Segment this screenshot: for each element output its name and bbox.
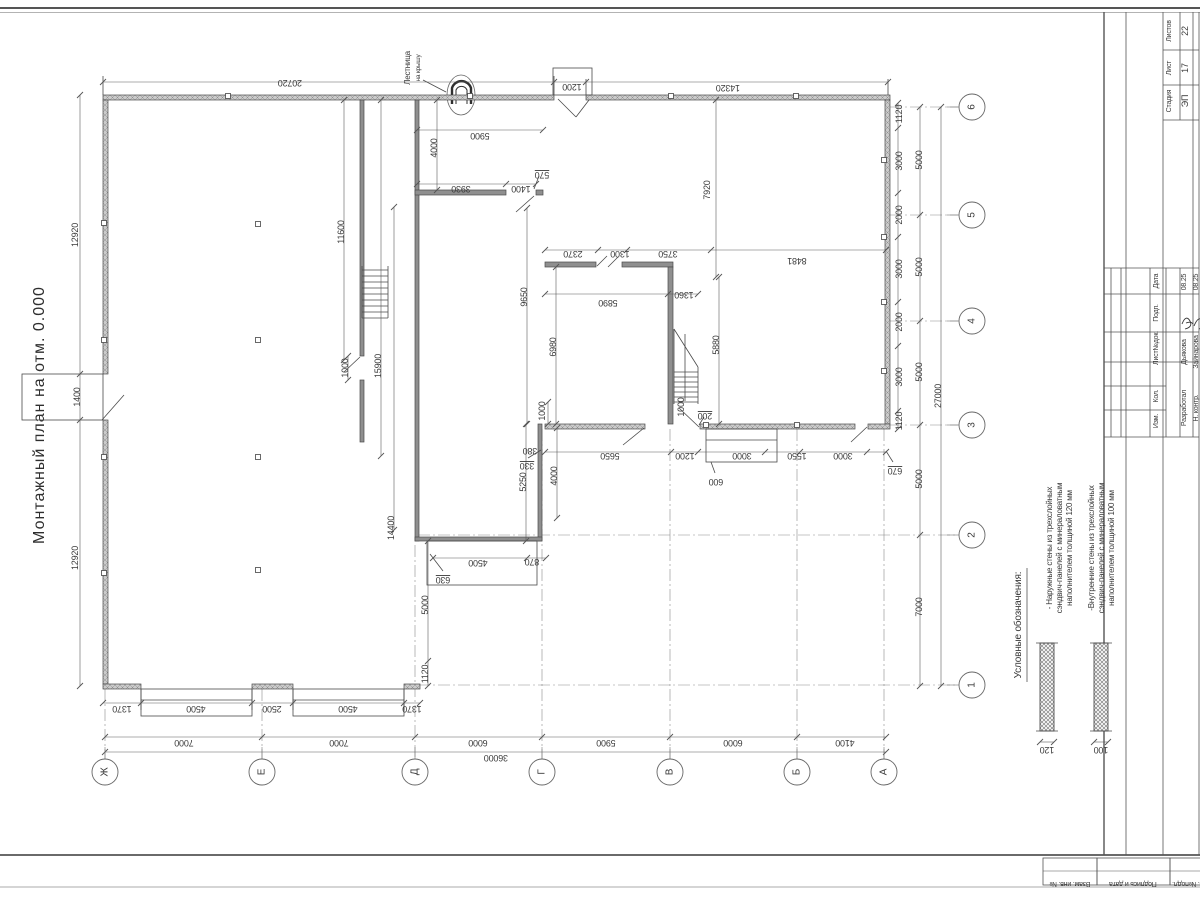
legend-wall-sample-interior: [1094, 643, 1108, 731]
column-mark: [468, 94, 473, 99]
legend-item1-line3: наполнителем толщиной 120 мм: [1065, 490, 1074, 606]
dim-text: 870: [525, 557, 540, 567]
stamp-sheets-value: 22: [1180, 26, 1190, 36]
detail-line: [558, 99, 576, 117]
interior-wall: [360, 380, 364, 442]
exterior-wall: [700, 424, 855, 429]
column-mark: [256, 568, 261, 573]
legend: Условные обозначения: - Наружные стены и…: [1012, 483, 1116, 731]
stamp-row1-role: Разработал: [1180, 390, 1188, 426]
dim-text: 100: [1094, 745, 1109, 755]
column-mark: [669, 94, 674, 99]
dim-text: 4500: [186, 704, 205, 714]
dim-text: 5000: [914, 362, 924, 381]
dim-text: 1550: [787, 451, 806, 461]
dim-text: 380: [523, 446, 538, 456]
axis-bubble-label: В: [665, 768, 676, 775]
column-mark: [256, 455, 261, 460]
dim-text: 11600: [336, 220, 346, 244]
dim-text: 2500: [262, 704, 281, 714]
dim-text: 3000: [894, 259, 904, 278]
exterior-wall: [103, 684, 141, 689]
dim-text: 2000: [894, 312, 904, 331]
stamp-sheet-value: 17: [1180, 63, 1190, 73]
legend-item1-line2: сэндвич-панелей с минераловатным: [1055, 483, 1064, 614]
dim-text: 3930: [451, 184, 470, 194]
dim-text: 5000: [914, 257, 924, 276]
dim-text: 4500: [338, 704, 357, 714]
axis-bubble-label: Е: [257, 768, 268, 775]
dim-text: 14400: [386, 516, 396, 540]
interior-wall: [545, 262, 596, 267]
exterior-wall: [586, 95, 890, 100]
axis-bubble-label: 2: [967, 532, 978, 538]
dim-text: 120: [1040, 745, 1055, 755]
dim-text: 12920: [70, 546, 80, 570]
stamp-row2-role: Н. контр.: [1193, 394, 1200, 421]
dim-text: 4000: [549, 466, 559, 485]
dim-text: 3000: [894, 367, 904, 386]
stamp-sheet-label: Лист: [1166, 60, 1173, 75]
interior-wall: [622, 262, 673, 267]
dim-text: 15900: [373, 354, 383, 378]
title-block: [1104, 12, 1199, 855]
column-mark: [882, 158, 887, 163]
stamp-row2-date: 08.25: [1193, 273, 1200, 290]
axis-bubble-label: А: [879, 768, 890, 775]
dim-text: 1120: [420, 665, 430, 684]
stamp-col-data: Дата: [1153, 273, 1160, 288]
stamp-col-podp: Подп.: [1153, 304, 1160, 322]
exterior-wall: [885, 100, 890, 424]
column-mark: [256, 338, 261, 343]
sheet-frame: [0, 8, 1200, 887]
side-box-vzam: Взам. инв. №: [1050, 880, 1091, 887]
axis-bubble-label: 1: [967, 682, 978, 688]
column-mark: [102, 455, 107, 460]
exterior-wall: [404, 684, 420, 689]
dim-text: 9650: [519, 287, 529, 306]
dim-text: 3750: [658, 249, 677, 259]
dim-text: 5890: [598, 298, 617, 308]
interior-wall: [538, 424, 542, 541]
exterior-wall: [252, 684, 293, 689]
side-box-podpis: Подпись и дата: [1109, 880, 1157, 887]
stamp-row1-name: Дьякова: [1181, 339, 1188, 365]
dim-text: 20720: [278, 78, 302, 88]
dim-text: 4100: [835, 738, 854, 748]
interior-wall: [668, 267, 673, 424]
ladder-note-line1: Лестница: [403, 50, 412, 84]
floor-plan-drawing: Стадия ЭП Лист 17 Листов 22 Изм. Кол. Ли…: [0, 0, 1200, 900]
axis-bubble-label: Г: [537, 769, 548, 775]
dim-text: 1370: [112, 704, 131, 714]
exterior-wall: [545, 424, 645, 429]
axis-bubble-label: Д: [410, 768, 421, 775]
dim-text: 4500: [468, 558, 487, 568]
exterior-wall: [103, 100, 108, 374]
dim-text: 6000: [723, 738, 742, 748]
legend-item1-line1: - Наружные стены из трехслойных: [1045, 487, 1054, 610]
column-mark: [882, 300, 887, 305]
dim-text: 8481: [787, 256, 806, 266]
stamp-stage-label: Стадия: [1166, 89, 1173, 112]
dim-text: 1000: [676, 397, 686, 416]
dim-text: 5650: [600, 451, 619, 461]
interior-wall: [415, 537, 542, 541]
legend-wall-sample-exterior: [1040, 643, 1054, 731]
detail-line: [674, 329, 698, 367]
dim-text: 1120: [894, 412, 904, 431]
stamp-col-izm: Изм.: [1153, 414, 1160, 428]
dim-text: 3000: [894, 151, 904, 170]
dim-text: 600: [709, 477, 724, 487]
detail-line: [430, 554, 443, 571]
ladder-note-line2: на крышу: [415, 54, 422, 82]
detail-line: [597, 256, 607, 266]
axis-bubble-label: Б: [792, 768, 803, 775]
axis-bubble-label: 5: [967, 212, 978, 218]
dim-text: 1400: [511, 184, 530, 194]
dim-text: 12920: [70, 223, 80, 247]
dim-text: 5000: [420, 595, 430, 614]
dim-text: 5250: [518, 472, 528, 491]
legend-item2-line2: сэндвич-панелей с минераловатным: [1097, 483, 1106, 614]
column-mark: [795, 423, 800, 428]
axis-bubble-label: 6: [967, 104, 978, 110]
page-title: Монтажный план на отм. 0.000: [31, 286, 48, 544]
dim-text: 3000: [833, 451, 852, 461]
stamp-sheets-label: Листов: [1166, 20, 1173, 42]
side-box-inv: Инв. №подл.: [1172, 880, 1200, 887]
dim-text: 7000: [329, 738, 348, 748]
detail-line: [711, 462, 715, 473]
legend-item2-line3: наполнителем толщиной 100 мм: [1107, 490, 1116, 606]
column-mark: [794, 94, 799, 99]
dim-text: 1400: [72, 387, 82, 406]
detail-line: [102, 395, 124, 420]
dim-text: 670: [888, 466, 903, 476]
dim-text: 1200: [675, 451, 694, 461]
axis-bubble-label: 4: [967, 318, 978, 324]
dim-text: 570: [535, 170, 550, 180]
dim-text: 1200: [562, 82, 581, 92]
signature: [1182, 318, 1193, 329]
interior-wall: [415, 100, 419, 541]
dim-text: 7000: [174, 738, 193, 748]
column-mark: [704, 423, 709, 428]
stamp-col-listdoc: Лист№док.: [1153, 331, 1160, 365]
stamp-row2-name: Зайнарова: [1192, 335, 1200, 369]
dim-text: 2000: [894, 205, 904, 224]
column-mark: [102, 571, 107, 576]
detail-line: [623, 428, 644, 445]
detail-line: [886, 451, 893, 462]
drawing-sheet: Стадия ЭП Лист 17 Листов 22 Изм. Кол. Ли…: [0, 0, 1200, 900]
dim-text: 5000: [914, 150, 924, 169]
column-mark: [102, 221, 107, 226]
column-mark: [102, 338, 107, 343]
plan-geometry: 2072012001432059004000393014005701292014…: [22, 68, 1112, 785]
dim-text: 4000: [429, 138, 439, 157]
dim-text: 5900: [470, 131, 489, 141]
legend-heading: Условные обозначения:: [1012, 572, 1024, 679]
dim-text: 3000: [732, 451, 751, 461]
dim-text: 36000: [484, 753, 508, 763]
dim-text: 1000: [340, 358, 350, 377]
dim-text: 330: [520, 461, 535, 471]
interior-wall: [536, 190, 543, 195]
axis-bubble-label: Ж: [100, 767, 111, 777]
dim-text: 1120: [894, 105, 904, 124]
dim-text: 1360: [674, 290, 693, 300]
column-mark: [882, 235, 887, 240]
dim-text: 5880: [711, 335, 721, 354]
dim-text: 7000: [914, 597, 924, 616]
dim-text: 1370: [402, 704, 421, 714]
dim-text: 630: [436, 575, 451, 585]
dim-text: 5900: [596, 738, 615, 748]
stamp-stage-value: ЭП: [1180, 95, 1190, 108]
dim-text: 6000: [468, 738, 487, 748]
dim-text: 7920: [702, 180, 712, 199]
dim-text: 14320: [716, 83, 740, 93]
detail-line: [576, 100, 589, 117]
axis-bubble-label: 3: [967, 422, 978, 428]
stamp-col-kol: Кол.: [1153, 389, 1160, 402]
exterior-wall: [103, 95, 554, 100]
dim-text: 200: [698, 411, 713, 421]
dim-text: 6980: [548, 337, 558, 356]
column-mark: [882, 369, 887, 374]
column-mark: [256, 222, 261, 227]
dim-text: 2370: [563, 249, 582, 259]
dim-text: 27000: [933, 384, 943, 408]
exterior-wall: [868, 424, 890, 429]
side-stamp-boxes: Взам. инв. № Подпись и дата Инв. №подл.: [1043, 858, 1200, 887]
dim-text: 5000: [914, 469, 924, 488]
stamp-row1-date: 08.25: [1181, 273, 1188, 290]
dim-text: 1000: [537, 401, 547, 420]
dim-text: 1300: [610, 249, 629, 259]
column-mark: [226, 94, 231, 99]
legend-item2-line1: -Внутренние стены из трехслойных: [1087, 485, 1096, 611]
